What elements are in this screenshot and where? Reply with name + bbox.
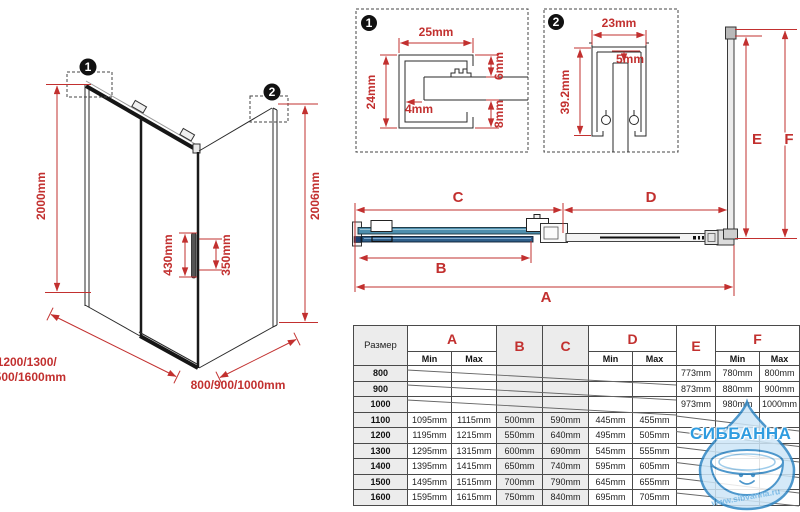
detail-2-badge-icon <box>548 14 564 30</box>
table-row: 900873mm880mm900mm <box>354 381 800 397</box>
badge-1-label: 1 <box>85 60 92 74</box>
value-cell <box>760 490 800 506</box>
size-cell: 900 <box>354 381 408 397</box>
dim-b-label: B <box>436 260 447 277</box>
value-cell <box>677 474 716 490</box>
dim-a-label: A <box>541 289 552 306</box>
value-cell: 455mm <box>633 412 677 428</box>
badge-1-icon <box>80 59 97 76</box>
value-cell: 1415mm <box>452 459 497 475</box>
value-cell <box>760 428 800 444</box>
subheader-d-min: Min <box>589 352 633 366</box>
isometric-view: 1 2 2000mm 2006mm 430mm <box>0 59 322 393</box>
value-cell <box>716 443 760 459</box>
value-cell: 800mm <box>760 366 800 382</box>
value-cell: 445mm <box>589 412 633 428</box>
dim-b: B <box>360 258 530 277</box>
size-table-container: Размер A B C D E F Min Max Min Max Min M… <box>353 325 799 506</box>
value-cell <box>716 459 760 475</box>
value-cell: 690mm <box>543 443 589 459</box>
size-cell: 1600 <box>354 490 408 506</box>
col-header-b: B <box>497 326 543 366</box>
dim-handle-height: 430mm <box>161 233 197 277</box>
value-cell <box>452 381 497 397</box>
value-cell: 505mm <box>633 428 677 444</box>
value-cell <box>677 428 716 444</box>
value-cell: 600mm <box>497 443 543 459</box>
value-cell: 790mm <box>543 474 589 490</box>
value-cell: 1115mm <box>452 412 497 428</box>
dim-depth-label: 800/900/1000mm <box>191 378 286 392</box>
value-cell <box>760 443 800 459</box>
col-header-e: E <box>677 326 716 366</box>
value-cell: 495mm <box>589 428 633 444</box>
value-cell <box>760 459 800 475</box>
value-cell <box>760 474 800 490</box>
value-cell: 1095mm <box>408 412 452 428</box>
dim-f: F <box>735 30 797 239</box>
roller-icon <box>630 116 639 125</box>
value-cell: 695mm <box>589 490 633 506</box>
value-cell <box>543 366 589 382</box>
value-cell <box>589 397 633 413</box>
size-table-body: 800773mm780mm800mm900873mm880mm900mm1000… <box>354 366 800 506</box>
value-cell: 1515mm <box>452 474 497 490</box>
value-cell: 840mm <box>543 490 589 506</box>
detail-1-width-label: 25mm <box>419 25 454 39</box>
badge-2-icon <box>264 84 281 101</box>
subheader-f-max: Max <box>760 352 800 366</box>
roller-carriage <box>527 219 549 232</box>
side-panel <box>199 108 277 368</box>
value-cell: 980mm <box>716 397 760 413</box>
value-cell <box>497 397 543 413</box>
value-cell <box>716 474 760 490</box>
value-cell <box>408 397 452 413</box>
subheader-d-max: Max <box>633 352 677 366</box>
col-header-a: A <box>408 326 497 352</box>
value-cell <box>589 381 633 397</box>
dim-height-right-label: 2006mm <box>308 172 322 220</box>
dim-width-label-1: 1100/1200/1300/ <box>0 355 57 369</box>
value-cell: 545mm <box>589 443 633 459</box>
value-cell: 705mm <box>633 490 677 506</box>
value-cell: 640mm <box>543 428 589 444</box>
door-panel <box>85 81 200 368</box>
table-row: 800773mm780mm800mm <box>354 366 800 382</box>
size-cell: 1100 <box>354 412 408 428</box>
value-cell <box>677 459 716 475</box>
detail-1-badge-icon <box>361 15 377 31</box>
size-cell: 1300 <box>354 443 408 459</box>
detail-2-dims: 23mm 5mm 39.2mm <box>558 16 646 136</box>
value-cell <box>760 412 800 428</box>
value-cell: 550mm <box>497 428 543 444</box>
size-cell: 1200 <box>354 428 408 444</box>
value-cell: 555mm <box>633 443 677 459</box>
value-cell: 973mm <box>677 397 716 413</box>
value-cell <box>716 490 760 506</box>
dim-depth: 800/900/1000mm <box>191 333 300 392</box>
value-cell: 1295mm <box>408 443 452 459</box>
dim-c-label: C <box>453 189 464 206</box>
fixed-rail-plan <box>566 234 706 242</box>
dim-height-left-label: 2000mm <box>34 172 48 220</box>
value-cell: 655mm <box>633 474 677 490</box>
door-handle <box>192 233 197 278</box>
size-cell: 1400 <box>354 459 408 475</box>
value-cell: 750mm <box>497 490 543 506</box>
size-cell: 1500 <box>354 474 408 490</box>
value-cell: 1000mm <box>760 397 800 413</box>
col-header-d: D <box>589 326 677 352</box>
panel-connector <box>541 224 568 243</box>
wall-profile <box>353 222 362 246</box>
value-cell <box>716 428 760 444</box>
shower-enclosure-spec-sheet: 1 2 2000mm 2006mm 430mm <box>0 0 800 512</box>
col-header-c: C <box>543 326 589 366</box>
detail-callout-2: 2 <box>250 84 288 123</box>
value-cell <box>716 412 760 428</box>
value-cell: 1615mm <box>452 490 497 506</box>
value-cell: 1595mm <box>408 490 452 506</box>
detail-1-dims: 25mm 24mm 6mm 8mm 4mm <box>364 25 506 128</box>
detail-1-badge-label: 1 <box>366 16 373 30</box>
value-cell <box>633 381 677 397</box>
badge-2-label: 2 <box>269 85 276 99</box>
value-cell <box>677 412 716 428</box>
table-row: 14001395mm1415mm650mm740mm595mm605mm <box>354 459 800 475</box>
value-cell: 1395mm <box>408 459 452 475</box>
detail-2-gap-label: 5mm <box>616 52 644 66</box>
dim-handle-inner: 350mm <box>199 234 233 275</box>
col-header-size: Размер <box>354 326 408 366</box>
value-cell <box>452 397 497 413</box>
detail-2-height-label: 39.2mm <box>558 70 572 115</box>
dim-width: 1100/1200/1300/ 1400/1500/1600mm <box>0 308 180 384</box>
subheader-a-max: Max <box>452 352 497 366</box>
value-cell: 873mm <box>677 381 716 397</box>
dim-handle-height-label: 430mm <box>161 234 175 275</box>
dim-height-right: 2006mm <box>278 104 322 323</box>
roller-icon <box>602 116 611 125</box>
table-row: 12001195mm1215mm550mm640mm495mm505mm <box>354 428 800 444</box>
value-cell <box>633 366 677 382</box>
value-cell: 1215mm <box>452 428 497 444</box>
value-cell: 590mm <box>543 412 589 428</box>
detail-2-width-label: 23mm <box>602 16 637 30</box>
dim-f-label: F <box>784 131 793 148</box>
dim-e-label: E <box>752 131 762 148</box>
value-cell <box>497 366 543 382</box>
value-cell <box>589 366 633 382</box>
table-row: 1000973mm980mm1000mm <box>354 397 800 413</box>
value-cell: 780mm <box>716 366 760 382</box>
value-cell <box>543 397 589 413</box>
table-row: 15001495mm1515mm700mm790mm645mm655mm <box>354 474 800 490</box>
value-cell: 650mm <box>497 459 543 475</box>
detail-1-profile: 1 25mm 24mm 6mm 8mm 4mm <box>356 9 528 152</box>
value-cell: 1315mm <box>452 443 497 459</box>
dim-handle-inner-label: 350mm <box>219 234 233 275</box>
value-cell: 700mm <box>497 474 543 490</box>
dim-d-label: D <box>646 189 657 206</box>
value-cell: 500mm <box>497 412 543 428</box>
value-cell: 605mm <box>633 459 677 475</box>
value-cell <box>677 443 716 459</box>
value-cell <box>633 397 677 413</box>
subheader-a-min: Min <box>408 352 452 366</box>
detail-1-gap-top-label: 6mm <box>492 52 506 80</box>
table-row: 16001595mm1615mm750mm840mm695mm705mm <box>354 490 800 506</box>
value-cell: 1495mm <box>408 474 452 490</box>
plan-view: C D B A <box>353 189 735 306</box>
detail-callout-1: 1 <box>67 59 112 98</box>
col-header-f: F <box>716 326 800 352</box>
subheader-f-min: Min <box>716 352 760 366</box>
size-table: Размер A B C D E F Min Max Min Max Min M… <box>353 325 800 506</box>
value-cell <box>408 381 452 397</box>
value-cell: 773mm <box>677 366 716 382</box>
value-cell <box>408 366 452 382</box>
detail-1-height-label: 24mm <box>364 75 378 110</box>
value-cell: 1195mm <box>408 428 452 444</box>
value-cell <box>497 381 543 397</box>
size-cell: 800 <box>354 366 408 382</box>
value-cell: 645mm <box>589 474 633 490</box>
detail-2-profile: 2 23mm 5mm 39.2mm <box>544 9 678 152</box>
value-cell: 880mm <box>716 381 760 397</box>
value-cell: 595mm <box>589 459 633 475</box>
side-view: F E <box>717 27 797 245</box>
value-cell <box>543 381 589 397</box>
value-cell: 740mm <box>543 459 589 475</box>
detail-1-gap-bottom-label: 8mm <box>492 100 506 128</box>
dim-d: D <box>565 189 727 210</box>
detail-1-wall-label: 4mm <box>405 102 433 116</box>
dim-width-label-2: 1400/1500/1600mm <box>0 370 66 384</box>
roller-carriage <box>371 221 392 232</box>
value-cell <box>452 366 497 382</box>
door-glass-plan <box>362 237 533 243</box>
size-cell: 1000 <box>354 397 408 413</box>
fixed-glass-plan <box>358 228 566 235</box>
dim-a: A <box>357 287 733 306</box>
value-cell <box>677 490 716 506</box>
table-row: 11001095mm1115mm500mm590mm445mm455mm <box>354 412 800 428</box>
detail-2-badge-label: 2 <box>553 15 560 29</box>
side-panel-section <box>728 30 735 238</box>
dim-e: E <box>735 36 762 237</box>
dim-c: C <box>357 189 562 210</box>
value-cell: 900mm <box>760 381 800 397</box>
table-row: 13001295mm1315mm600mm690mm545mm555mm <box>354 443 800 459</box>
dim-height-left: 2000mm <box>34 85 91 293</box>
